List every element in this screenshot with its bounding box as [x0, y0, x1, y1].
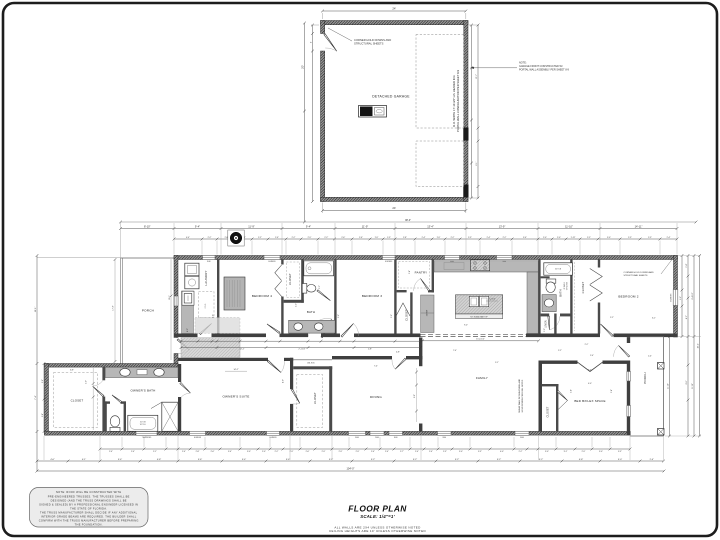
svg-text:4'-9": 4'-9"	[283, 379, 285, 383]
svg-text:FAMILY: FAMILY	[476, 376, 488, 380]
svg-text:DBL ROD: DBL ROD	[307, 363, 315, 365]
svg-text:11'-10": 11'-10"	[692, 383, 694, 389]
svg-text:TEMPERED: TEMPERED	[142, 437, 152, 439]
svg-text:11'-9": 11'-9"	[248, 224, 254, 228]
svg-text:2'-2": 2'-2"	[558, 350, 562, 352]
svg-text:3'-3": 3'-3"	[618, 451, 622, 453]
svg-text:3'-4": 3'-4"	[42, 413, 44, 417]
svg-text:104'-0": 104'-0"	[346, 467, 354, 471]
svg-text:2'-9": 2'-9"	[648, 237, 652, 239]
svg-text:5'-2": 5'-2"	[371, 459, 376, 461]
svg-text:2'-8": 2'-8"	[403, 237, 407, 239]
svg-text:10'-1": 10'-1"	[169, 295, 171, 300]
svg-text:2'-0": 2'-0"	[543, 237, 547, 239]
svg-text:6'-8": 6'-8"	[70, 370, 74, 372]
svg-text:3'-3": 3'-3"	[478, 451, 482, 453]
svg-text:4'-8": 4'-8"	[157, 459, 162, 461]
svg-text:5'-2": 5'-2"	[413, 459, 418, 461]
svg-text:2'-0": 2'-0"	[650, 459, 655, 461]
svg-text:STRUCTURAL SHEETS: STRUCTURAL SHEETS	[624, 274, 649, 277]
svg-text:5'-0": 5'-0"	[618, 459, 623, 461]
svg-text:1'-9": 1'-9"	[375, 237, 379, 239]
svg-text:2'-8": 2'-8"	[196, 451, 200, 453]
svg-text:3'-0": 3'-0"	[247, 451, 251, 453]
svg-text:2'-0": 2'-0"	[544, 328, 546, 332]
svg-text:W/ TILE: W/ TILE	[140, 424, 146, 426]
svg-text:7'-4": 7'-4"	[35, 395, 37, 400]
svg-text:2'-2": 2'-2"	[519, 451, 523, 453]
svg-text:3'-6": 3'-6"	[42, 379, 44, 383]
svg-text:2'-9": 2'-9"	[290, 451, 294, 453]
svg-text:4'-8": 4'-8"	[579, 459, 584, 461]
svg-text:2'-4": 2'-4"	[487, 237, 491, 239]
svg-text:1'-9": 1'-9"	[387, 237, 391, 239]
svg-text:OWNER'S BATH: OWNER'S BATH	[130, 389, 155, 393]
svg-text:2'-4": 2'-4"	[409, 270, 411, 274]
svg-text:2'-1": 2'-1"	[153, 451, 157, 453]
svg-text:LAUNDRY: LAUNDRY	[204, 270, 208, 285]
svg-text:3'-6": 3'-6"	[523, 237, 527, 239]
svg-text:4'-0": 4'-0"	[187, 328, 189, 332]
svg-text:2'-2": 2'-2"	[258, 237, 262, 239]
svg-text:CLOSET: CLOSET	[581, 281, 585, 293]
svg-text:9'-8": 9'-8"	[414, 394, 416, 398]
svg-text:2'-9": 2'-9"	[468, 237, 472, 239]
svg-text:19'-1": 19'-1"	[697, 343, 699, 349]
svg-text:W/ NOTES: W/ NOTES	[567, 281, 569, 290]
svg-text:INTERIOR GRADE BEAMS ARE REQUI: INTERIOR GRADE BEAMS ARE REQUIRED. THE B…	[41, 515, 137, 519]
svg-text:5'-2": 5'-2"	[539, 459, 544, 461]
svg-text:THE TRUSS MANUFACTURER SHALL D: THE TRUSS MANUFACTURER SHALL DECIDE IF A…	[40, 510, 138, 514]
svg-text:4'-1": 4'-1"	[476, 161, 478, 165]
svg-text:5'-4": 5'-4"	[118, 459, 123, 461]
svg-text:2'-4": 2'-4"	[571, 389, 573, 393]
svg-text:EGRESS: EGRESS	[269, 437, 277, 439]
svg-text:4'-8": 4'-8"	[396, 352, 400, 354]
svg-text:BEDROOM 3: BEDROOM 3	[362, 294, 382, 298]
svg-text:2'-2": 2'-2"	[319, 285, 321, 289]
svg-text:2'-9": 2'-9"	[356, 451, 360, 453]
svg-text:BATH: BATH	[559, 289, 563, 297]
svg-text:2'-0": 2'-0"	[86, 380, 88, 384]
svg-text:BEDROOM 2: BEDROOM 2	[618, 295, 638, 299]
svg-text:2'-4": 2'-4"	[648, 356, 652, 358]
svg-text:2'-6": 2'-6"	[359, 237, 363, 239]
svg-text:8'-4 1/2": 8'-4 1/2"	[692, 292, 694, 299]
svg-text:2'-1 1/2": 2'-1 1/2"	[299, 349, 306, 351]
svg-text:12'-1": 12'-1"	[240, 349, 245, 351]
svg-text:PORTAL WALL ASSEMBLY PER SHEET: PORTAL WALL ASSEMBLY PER SHEET 8-9	[519, 69, 570, 72]
svg-text:14'-11": 14'-11"	[635, 224, 643, 228]
svg-text:SIGNED & SEALED) BY A PROFESSI: SIGNED & SEALED) BY A PROFESSIONAL ENGIN…	[39, 502, 138, 506]
svg-text:2'-2": 2'-2"	[585, 344, 589, 346]
svg-text:3'-4": 3'-4"	[228, 451, 232, 453]
svg-text:2'-4": 2'-4"	[415, 451, 419, 453]
svg-text:THE FOUNDATION.: THE FOUNDATION.	[75, 523, 103, 527]
svg-text:2'-4": 2'-4"	[109, 451, 113, 453]
svg-text:PANTRY: PANTRY	[415, 271, 428, 275]
svg-text:2'-2": 2'-2"	[275, 451, 279, 453]
svg-text:2'-4": 2'-4"	[182, 451, 186, 453]
svg-text:9'-4": 9'-4"	[195, 224, 200, 228]
svg-text:2'-9": 2'-9"	[582, 451, 586, 453]
svg-text:24': 24'	[392, 206, 396, 210]
svg-text:2'-6": 2'-6"	[211, 451, 215, 453]
svg-text:CLOSET: CLOSET	[313, 392, 317, 404]
svg-text:FLOOR PLAN: FLOOR PLAN	[348, 504, 407, 514]
svg-text:14'-2": 14'-2"	[233, 369, 238, 371]
svg-text:60 TUB: 60 TUB	[555, 269, 562, 271]
svg-text:FOLD: FOLD	[205, 303, 207, 308]
svg-text:1'-11": 1'-11"	[571, 237, 576, 239]
svg-text:2'-4": 2'-4"	[429, 451, 433, 453]
svg-text:2'-7": 2'-7"	[400, 451, 404, 453]
svg-text:2'-2": 2'-2"	[503, 237, 507, 239]
svg-text:8'-10": 8'-10"	[144, 224, 151, 228]
svg-text:2'-4": 2'-4"	[590, 355, 594, 357]
svg-text:11'-9": 11'-9"	[362, 224, 368, 228]
svg-text:3'-0": 3'-0"	[545, 451, 549, 453]
svg-text:5'-6": 5'-6"	[680, 296, 682, 300]
svg-text:11'-10": 11'-10"	[565, 224, 573, 228]
svg-text:SCALE: 1/4"=1': SCALE: 1/4"=1'	[360, 514, 395, 519]
svg-text:6'-1": 6'-1"	[652, 318, 656, 320]
svg-text:5'-4": 5'-4"	[286, 459, 291, 461]
svg-text:2'-2": 2'-2"	[451, 237, 455, 239]
svg-text:CORNER HOLD DOWNS AND: CORNER HOLD DOWNS AND	[354, 38, 391, 42]
svg-text:CORNER HOLD DOWNS AND: CORNER HOLD DOWNS AND	[624, 271, 655, 274]
svg-text:13'-9": 13'-9"	[499, 224, 506, 228]
svg-text:3'-0": 3'-0"	[599, 451, 603, 453]
svg-text:3'-1": 3'-1"	[564, 451, 568, 453]
svg-text:3060: 3060	[394, 437, 398, 439]
svg-text:10'-1": 10'-1"	[35, 306, 37, 312]
svg-text:2'-3": 2'-3"	[443, 451, 447, 453]
svg-text:5'-2": 5'-2"	[455, 459, 460, 461]
svg-text:THE STATE OF FLORIDA.: THE STATE OF FLORIDA.	[70, 506, 107, 510]
svg-text:5'-4": 5'-4"	[242, 459, 247, 461]
svg-text:HOLD DOWNS PER ENG. NOTES: HOLD DOWNS PER ENG. NOTES	[522, 379, 524, 412]
svg-text:2'-4": 2'-4"	[371, 451, 375, 453]
svg-text:2'-4": 2'-4"	[385, 451, 389, 453]
svg-text:2'-4": 2'-4"	[131, 451, 135, 453]
svg-text:EGRESS: EGRESS	[194, 437, 202, 439]
svg-text:4'-2": 4'-2"	[686, 315, 688, 319]
svg-text:4'-4": 4'-4"	[186, 237, 190, 239]
svg-text:2'-4": 2'-4"	[667, 237, 671, 239]
svg-text:3060: 3060	[502, 261, 506, 263]
svg-text:CLOSET: CLOSET	[546, 406, 550, 417]
svg-text:15'-6 1/2": 15'-6 1/2"	[476, 339, 485, 341]
svg-text:2'-9": 2'-9"	[322, 451, 326, 453]
svg-text:7'-4": 7'-4"	[453, 350, 457, 352]
svg-text:2'-9": 2'-9"	[339, 451, 343, 453]
svg-text:2'-4": 2'-4"	[686, 264, 688, 268]
svg-text:PORTAL WALL CONFIGURATION PER: PORTAL WALL CONFIGURATION PER SHEET 8-9	[456, 70, 460, 132]
svg-text:5'-6": 5'-6"	[198, 459, 203, 461]
svg-text:BATH: BATH	[307, 310, 315, 314]
svg-text:9'-4": 9'-4"	[306, 224, 311, 228]
svg-text:CLOSET: CLOSET	[288, 273, 292, 285]
svg-text:DESIGNED (AND THE TRUSS DRAWIN: DESIGNED (AND THE TRUSS DRAWINGS SHALL B…	[51, 498, 127, 502]
svg-text:60 TUB: 60 TUB	[140, 422, 147, 424]
svg-text:2'-6": 2'-6"	[391, 314, 393, 318]
svg-text:9'-0": 9'-0"	[464, 325, 468, 327]
svg-text:5'-2": 5'-2"	[329, 459, 334, 461]
svg-text:17'-8": 17'-8"	[113, 305, 115, 310]
svg-text:4'-6": 4'-6"	[50, 459, 55, 461]
svg-text:2'-0": 2'-0"	[262, 451, 266, 453]
svg-text:3060: 3060	[442, 437, 446, 439]
svg-text:PORCH: PORCH	[142, 309, 154, 313]
svg-text:3'-0": 3'-0"	[607, 237, 611, 239]
svg-text:CLOSET: CLOSET	[71, 399, 84, 403]
svg-text:KIT. ISLAND BAR TOP: KIT. ISLAND BAR TOP	[470, 315, 488, 318]
svg-text:DETACHED GARAGE: DETACHED GARAGE	[372, 95, 410, 99]
svg-text:2'-6": 2'-6"	[275, 237, 279, 239]
svg-text:4'-0": 4'-0"	[588, 383, 592, 385]
svg-text:2'-5": 2'-5"	[587, 237, 591, 239]
svg-text:R.O. WIDTH 17'-10 3/4" LVL HEA: R.O. WIDTH 17'-10 3/4" LVL HEADER IN A	[452, 75, 456, 127]
svg-text:8'-6": 8'-6"	[686, 380, 688, 384]
svg-text:2'-2": 2'-2"	[610, 317, 614, 319]
svg-text:2060: 2060	[375, 437, 379, 439]
svg-text:EGRESS: EGRESS	[671, 293, 673, 302]
svg-text:15'-7": 15'-7"	[476, 74, 478, 79]
svg-text:2'-2": 2'-2"	[208, 237, 212, 239]
svg-text:CEILING HEIGHTS ARE 10' UNLESS: CEILING HEIGHTS ARE 10' UNLESS OTHERWISE…	[329, 529, 426, 533]
svg-text:3060: 3060	[355, 437, 359, 439]
svg-text:2'-9": 2'-9"	[628, 237, 632, 239]
svg-text:EGRESS: EGRESS	[268, 261, 276, 263]
svg-text:4'-1": 4'-1"	[82, 459, 87, 461]
svg-text:98'-0": 98'-0"	[405, 220, 411, 222]
svg-text:2'-5": 2'-5"	[308, 237, 312, 239]
svg-text:2'-6": 2'-6"	[213, 314, 215, 318]
svg-text:LINEN: LINEN	[545, 320, 548, 328]
svg-text:BED B/FLEX SPACE: BED B/FLEX SPACE	[574, 399, 605, 403]
svg-text:CLOSET: CLOSET	[405, 309, 409, 321]
svg-text:2'-6": 2'-6"	[306, 451, 310, 453]
svg-text:4'-2 1/2": 4'-2 1/2"	[488, 299, 496, 301]
svg-text:PRE-ENGINEERED TRUSSES. THE T: PRE-ENGINEERED TRUSSES. THE TRUSSES SHAL…	[48, 494, 130, 498]
svg-text:3'-0": 3'-0"	[459, 451, 463, 453]
svg-text:SHEAR WALL W/ SHEATHING AND: SHEAR WALL W/ SHEATHING AND	[518, 379, 521, 413]
svg-text:2'-2": 2'-2"	[292, 237, 296, 239]
svg-text:13'-4": 13'-4"	[427, 224, 434, 228]
svg-text:NOTE: ROOF WILL BE CONSTR: NOTE: ROOF WILL BE CONSTRUCTED WITH	[56, 490, 121, 494]
svg-text:5'-1": 5'-1"	[495, 362, 499, 364]
svg-text:2040: 2040	[207, 261, 211, 263]
svg-text:3060: 3060	[520, 437, 524, 439]
svg-text:2'-6": 2'-6"	[341, 237, 345, 239]
svg-text:20': 20'	[300, 65, 304, 69]
svg-text:2'-4": 2'-4"	[422, 237, 426, 239]
svg-text:BEDROOM 4: BEDROOM 4	[252, 294, 272, 298]
svg-text:2'-6": 2'-6"	[338, 314, 340, 318]
svg-text:2'-4": 2'-4"	[611, 389, 613, 393]
svg-text:4'-0": 4'-0"	[500, 451, 504, 453]
svg-text:PORCH: PORCH	[643, 372, 647, 383]
svg-text:DINING: DINING	[370, 395, 382, 399]
svg-text:2'-0": 2'-0"	[557, 237, 561, 239]
svg-text:EGRESS: EGRESS	[385, 261, 393, 263]
svg-text:1'-9": 1'-9"	[437, 237, 441, 239]
svg-text:7'-4": 7'-4"	[374, 366, 378, 368]
svg-text:2'-2": 2'-2"	[324, 237, 328, 239]
svg-text:36 REF: 36 REF	[427, 309, 429, 316]
svg-text:5'-2": 5'-2"	[497, 459, 502, 461]
svg-text:11'-10": 11'-10"	[667, 383, 669, 389]
svg-text:2'-2": 2'-2"	[296, 303, 298, 307]
svg-text:CONFIRM WITH THE TRUSS MANUFAC: CONFIRM WITH THE TRUSS MANUFACTURER BEFO…	[39, 519, 139, 523]
svg-text:OWNER'S SUITE: OWNER'S SUITE	[222, 395, 249, 399]
svg-text:STRUCTURAL SHEETS: STRUCTURAL SHEETS	[354, 42, 384, 46]
svg-text:7'-4": 7'-4"	[588, 370, 592, 372]
svg-text:3060: 3060	[450, 261, 454, 263]
svg-text:2'-8": 2'-8"	[368, 349, 372, 351]
svg-text:24': 24'	[392, 7, 396, 11]
